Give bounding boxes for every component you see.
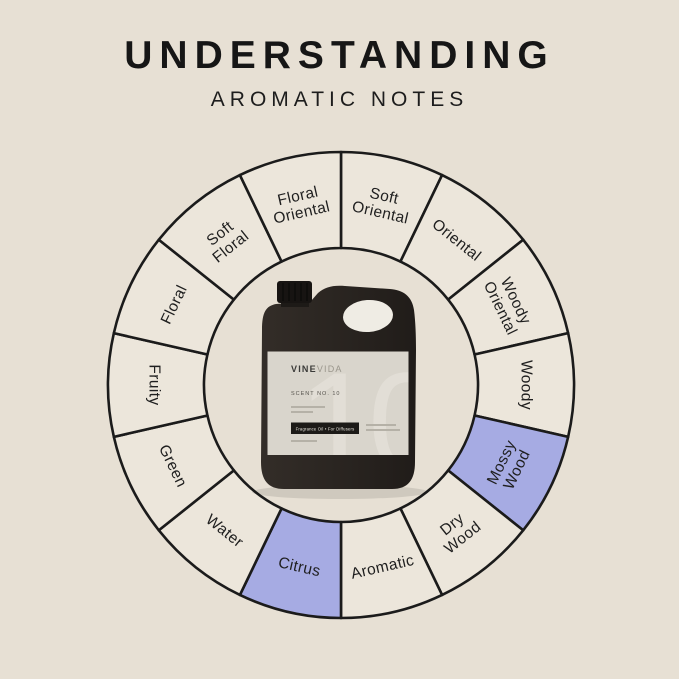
product-bottle-image: 10 VINEVIDA SCENT NO. 10 Fragrance Oil •…: [252, 281, 441, 500]
wheel-label-fruity: Fruity: [146, 364, 163, 405]
scent-number-line: SCENT NO. 10: [291, 391, 341, 397]
label-fine-print-line: [291, 411, 313, 413]
aroma-wheel-graphic: SoftOrientalOrientalWoodyOrientalWoodyMo…: [0, 0, 679, 679]
label-fine-print-line: [291, 440, 317, 442]
wheel-label-woody: Woody: [518, 360, 535, 410]
label-fine-print-line: [366, 429, 400, 431]
brand-name-bold: VINE: [291, 364, 317, 374]
label-fine-print-line: [366, 424, 396, 426]
brand-name-light: VIDA: [317, 364, 343, 374]
brand-name: VINEVIDA: [291, 364, 343, 374]
label-badge-text: Fragrance Oil • For Diffusers: [296, 427, 355, 432]
label-fine-print-line: [291, 406, 325, 408]
